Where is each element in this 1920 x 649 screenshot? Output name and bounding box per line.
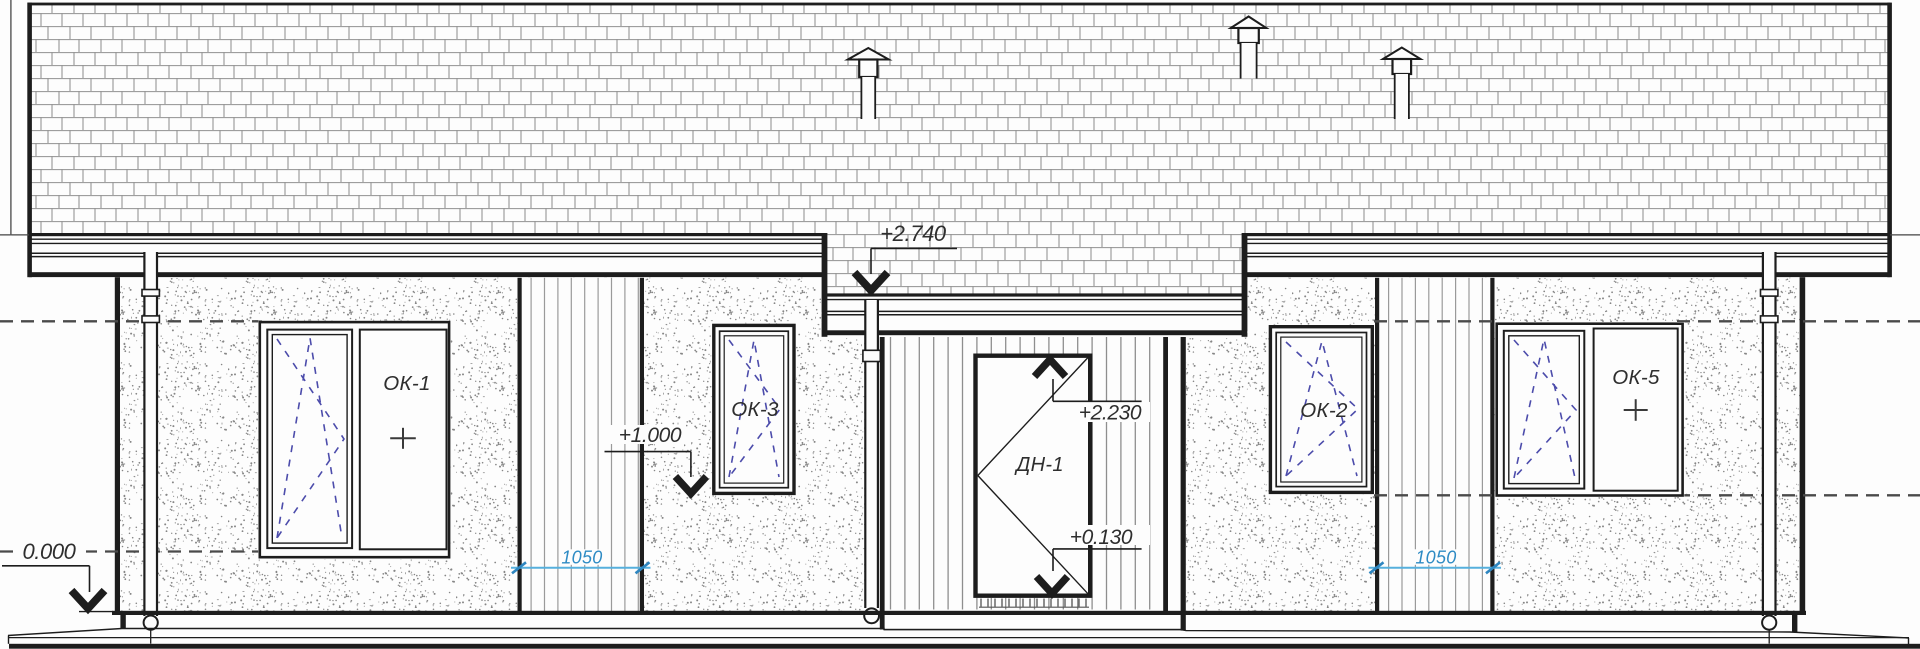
svg-text:+2.740: +2.740 [880,221,947,246]
svg-text:+0.130: +0.130 [1070,526,1133,549]
svg-text:ОК-3: ОК-3 [731,398,779,421]
svg-text:1050: 1050 [561,547,602,567]
svg-text:+1.000: +1.000 [619,424,682,447]
svg-text:ОК-1: ОК-1 [383,372,430,395]
svg-text:1050: 1050 [1415,547,1456,567]
svg-text:ОК-5: ОК-5 [1612,366,1660,389]
svg-text:ДН-1: ДН-1 [1014,454,1064,476]
svg-text:+2.230: +2.230 [1079,402,1142,425]
svg-text:0.000: 0.000 [22,539,76,564]
svg-text:ОК-2: ОК-2 [1300,399,1348,422]
